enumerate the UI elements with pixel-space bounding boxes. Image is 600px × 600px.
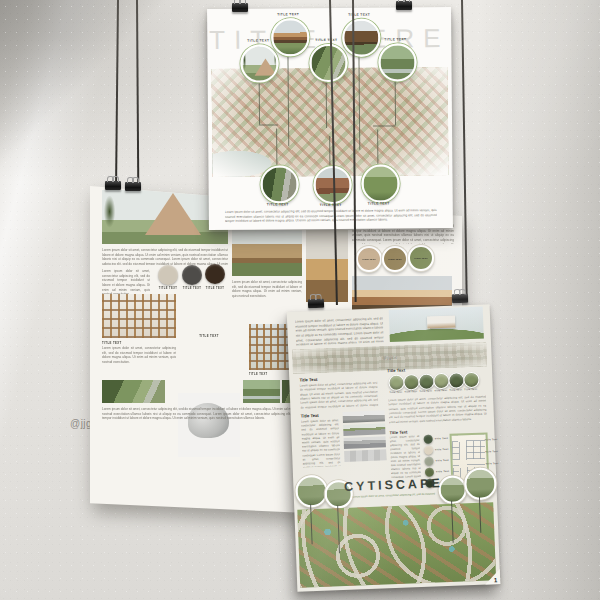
binder-clip (105, 181, 121, 190)
vegetation-label: Title Text (419, 389, 433, 392)
context-circle-photo (361, 164, 399, 202)
section-strip-image (343, 410, 385, 423)
section-label: TITLE TEXT (102, 341, 122, 345)
vegetation-label: Title Text (389, 391, 403, 394)
body-paragraph: Lorem ipsum dolor sit amet, consectetur … (102, 407, 315, 420)
poster-bottom-title: CYTISCAPE (337, 476, 449, 494)
swatch-label: Title Text (435, 448, 448, 451)
body-paragraph: Lorem ipsum dolor sit amet, consectetur … (301, 418, 341, 467)
section-heading: Title Text (389, 429, 407, 435)
circle-label: TITLE TEXT (269, 12, 307, 16)
circle-label: TITLE TEXT (360, 201, 398, 205)
body-paragraph: Lorem ipsum dolor sit amet, consectetur … (390, 435, 422, 480)
body-paragraph: Lorem ipsum dolor sit amet, consectetur … (388, 394, 487, 426)
vegetation-circle (433, 373, 450, 390)
vegetation-circle (448, 372, 465, 389)
swatch-label: Title Text (435, 459, 448, 462)
body-paragraph: Lorem ipsum dolor sit amet, consectetur … (299, 381, 378, 410)
swatch-label: Title Text (435, 437, 448, 440)
plan-swatch (424, 445, 433, 454)
timber-frame-render (102, 294, 176, 338)
context-circle-photo (378, 43, 416, 81)
swatch-label: Title Text (436, 470, 449, 473)
section-heading: Title Text (299, 377, 317, 383)
sculpture-label: TITLE TEXT (178, 334, 240, 338)
body-paragraph: Lorem ipsum dolor sit amet, consectetur … (102, 346, 176, 374)
vegetation-circle (463, 372, 480, 389)
context-circle-photo (342, 19, 380, 57)
context-circle-photo (240, 44, 278, 82)
binder-clip (125, 182, 141, 191)
swatch-label: TITLE TEXT (182, 287, 202, 290)
circle-label: TITLE TEXT (312, 203, 350, 207)
binder-clip (396, 1, 412, 10)
leader-line (373, 125, 395, 126)
circle-label: TITLE TEXT (340, 13, 378, 17)
swatch-label: TITLE TEXT (205, 287, 225, 290)
swatch-label: TITLE TEXT (158, 287, 178, 290)
theme-circle: TITLE TEXT (356, 246, 382, 272)
section-heading: Title Text (387, 368, 405, 374)
poster-cytiscape: Lorem ipsum dolor sit amet, consectetur … (287, 304, 501, 592)
section-strip-image (344, 449, 386, 462)
vegetation-label: Title Text (464, 388, 478, 391)
wall-scene: @jjg ibs Lorem ipsum dolor sit amet, con… (0, 0, 600, 600)
section-heading: Title Text (301, 413, 319, 419)
theme-circle: TITLE TEXT (382, 246, 408, 272)
vegetation-circle (403, 374, 420, 391)
vegetation-label: Title Text (404, 390, 418, 393)
body-paragraph: Lorem ipsum dolor sit amet, consectetur … (295, 316, 384, 345)
material-swatch (158, 265, 178, 285)
binder-clip (232, 3, 248, 12)
circle-label: TITLE TEXT (376, 37, 414, 41)
section-strip-image (343, 423, 385, 436)
theme-circle: TITLE TEXT (408, 245, 434, 271)
hill-house-photo (389, 306, 484, 342)
kiwi-sculpture-photo (178, 393, 240, 457)
banner-watermark: @jjgibs (293, 351, 487, 363)
body-paragraph: Lorem ipsum dolor sit amet, consectetur … (232, 280, 302, 302)
plan-swatch (424, 456, 433, 465)
body-paragraph: Lorem ipsum dolor sit amet, consectetur … (102, 248, 228, 265)
page-number: 1 (494, 577, 498, 583)
vegetation-label: Title Text (449, 388, 463, 391)
plan-swatch (424, 434, 433, 443)
material-swatch (205, 264, 225, 284)
wood-cabin-render (232, 230, 302, 276)
section-strip-image (344, 436, 386, 449)
material-swatch (182, 265, 202, 285)
body-paragraph: Lorem ipsum dolor sit amet, consectetur … (102, 269, 150, 295)
context-circle-photo (309, 44, 347, 82)
vegetation-circle (388, 375, 405, 392)
context-circle-photo (295, 475, 328, 508)
park-photo (102, 380, 165, 403)
plan-swatch (425, 467, 434, 476)
vegetation-circle (418, 373, 435, 390)
interior-photo (306, 230, 348, 302)
binder-clip (308, 299, 324, 309)
circle-label: TITLE TEXT (307, 38, 345, 42)
section-label: TITLE TEXT (249, 373, 268, 376)
page-corner (485, 569, 501, 585)
community-aerial-render (297, 502, 496, 587)
context-circle-photo (464, 467, 497, 500)
leader-line (259, 124, 278, 125)
park-photo (243, 380, 280, 403)
vegetation-label: Title Text (434, 389, 448, 392)
circle-label: TITLE TEXT (259, 202, 297, 206)
context-circle-photo (271, 18, 309, 56)
context-circle-photo (260, 165, 298, 203)
binder-clip (452, 294, 468, 304)
body-paragraph: Lorem ipsum dolor sit amet, consectetur … (225, 208, 437, 226)
